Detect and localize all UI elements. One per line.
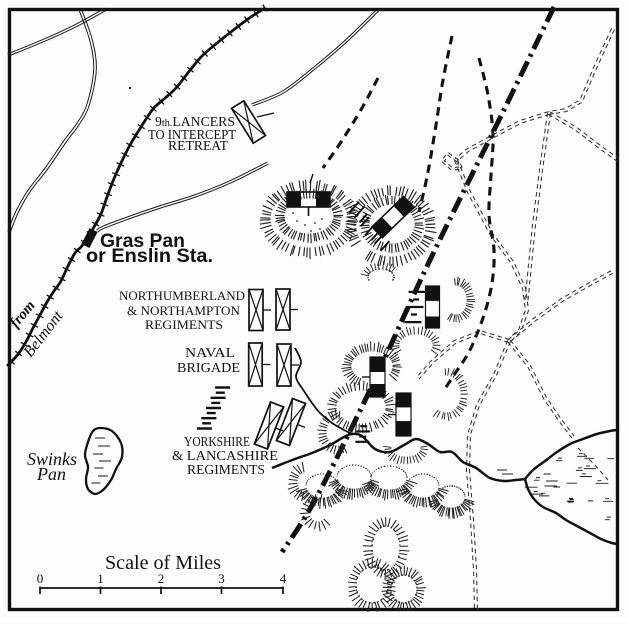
svg-text:1: 1 [97,571,104,586]
svg-text:3: 3 [218,571,225,586]
svg-text:RETREAT: RETREAT [168,138,229,153]
svg-text:or Enslin Sta.: or Enslin Sta. [86,246,213,267]
svg-text:NORTHUMBERLAND: NORTHUMBERLAND [119,288,245,303]
svg-text:Pan: Pan [36,464,66,484]
svg-text:& LANCASHIRE: & LANCASHIRE [172,449,278,464]
svg-text:0: 0 [37,571,44,586]
svg-text:REGIMENTS: REGIMENTS [145,317,223,332]
svg-text:2: 2 [158,571,165,586]
svg-text:REGIMENTS: REGIMENTS [187,463,265,478]
svg-text:& NORTHAMPTON: & NORTHAMPTON [127,303,241,318]
svg-text:BRIGADE: BRIGADE [177,361,240,376]
svg-text:YORKSHIRE: YORKSHIRE [184,435,250,450]
svg-text:NAVAL: NAVAL [185,346,235,361]
svg-text:4: 4 [280,571,287,586]
